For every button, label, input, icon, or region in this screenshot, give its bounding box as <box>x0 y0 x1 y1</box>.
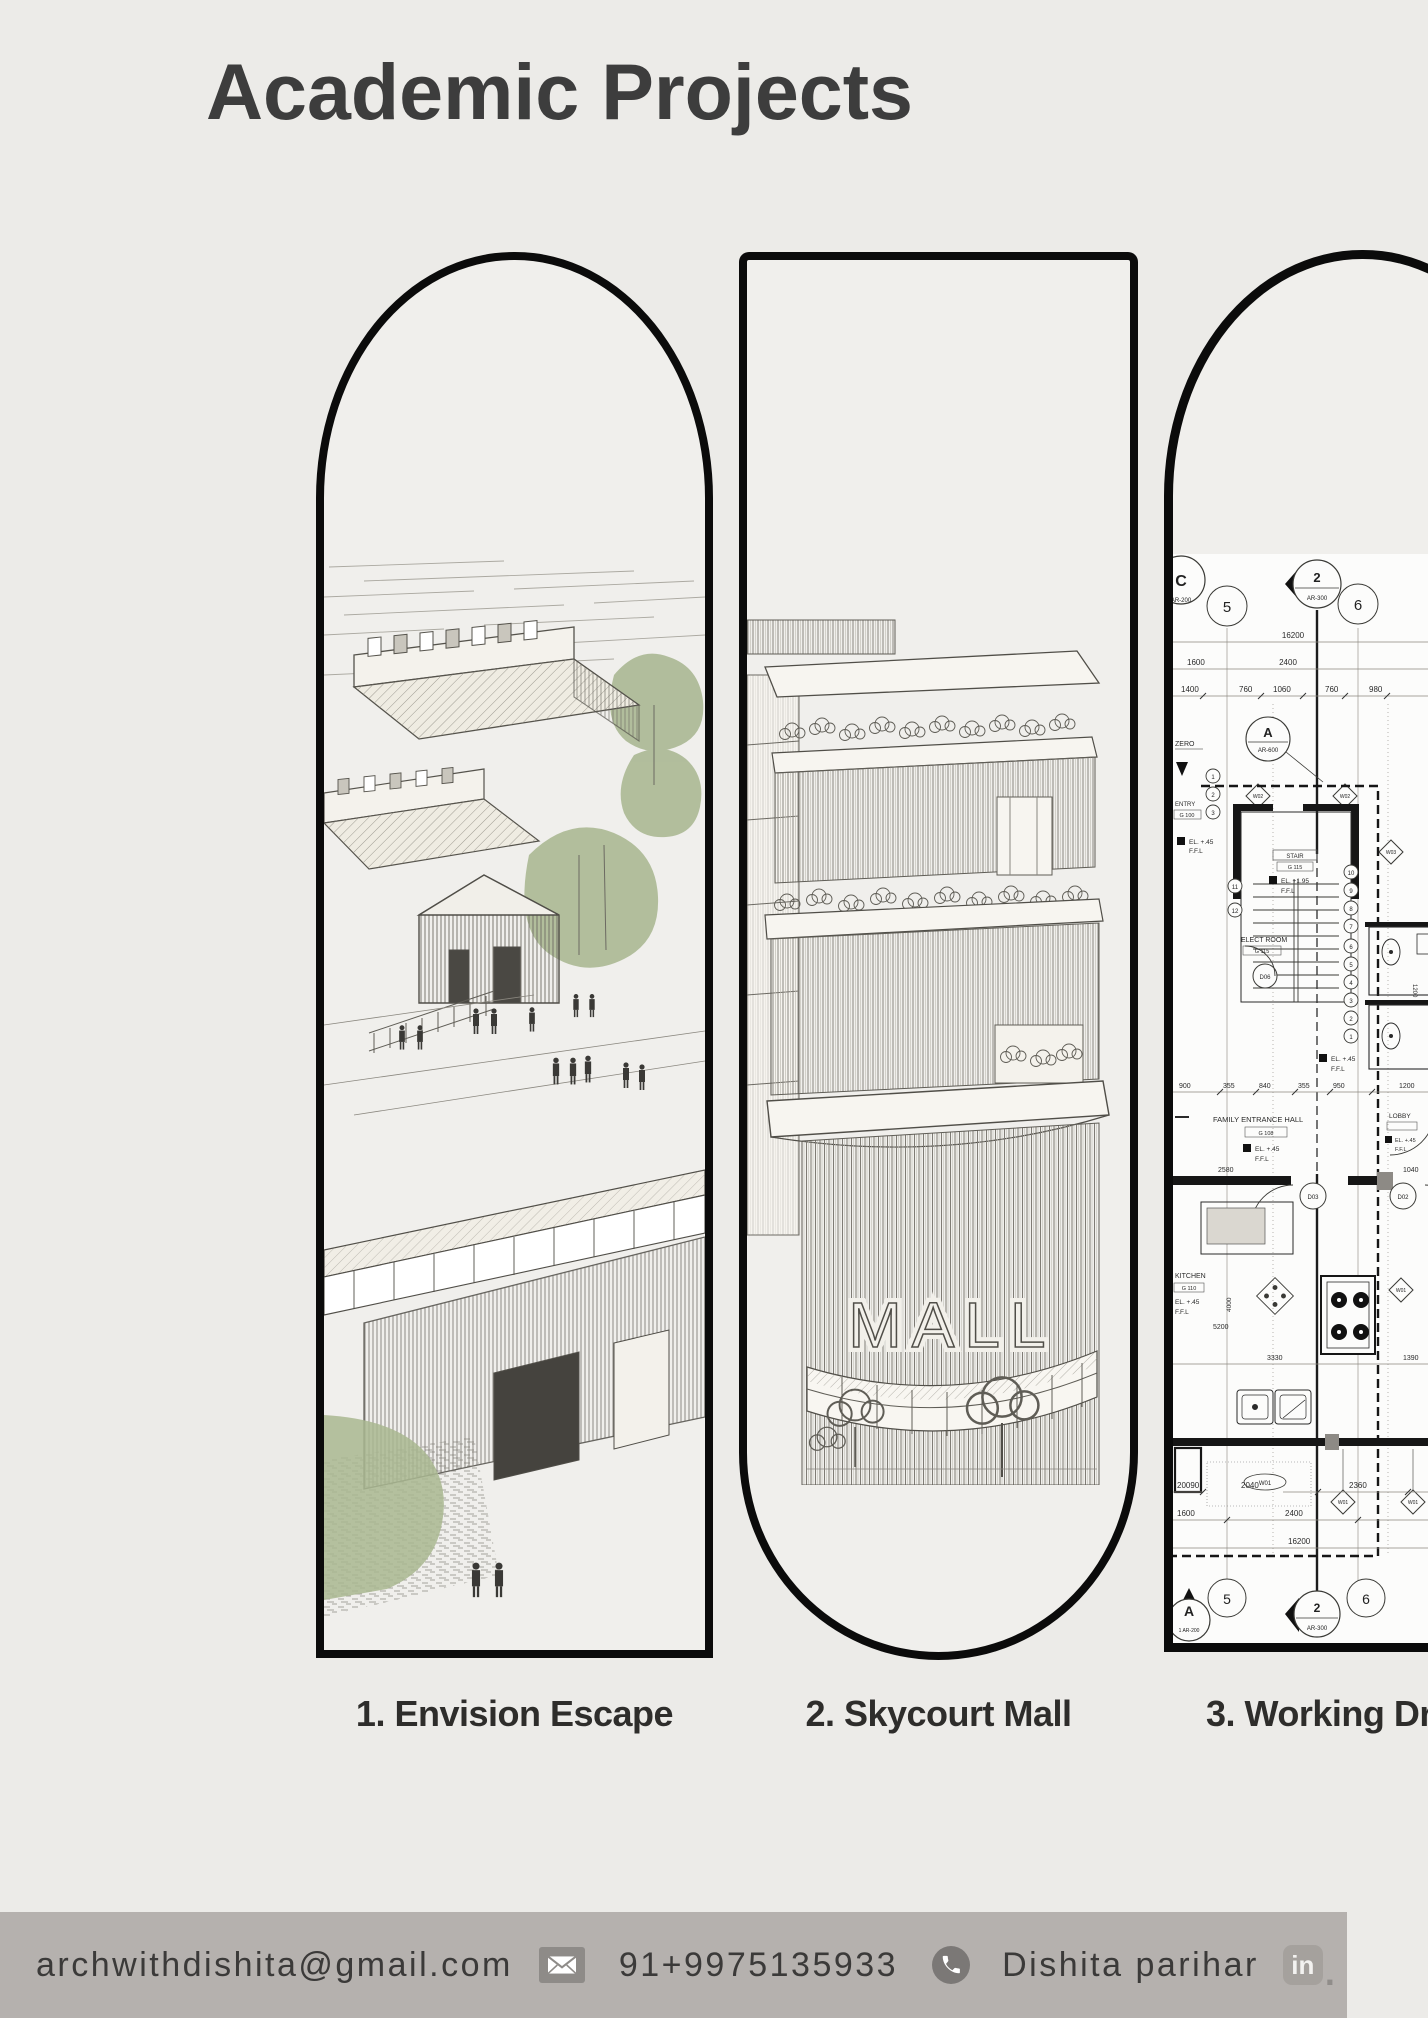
top-parapet <box>747 620 895 654</box>
svg-text:C: C <box>1175 573 1187 590</box>
svg-text:G 115: G 115 <box>1288 865 1303 871</box>
working-drawing-plan: C AR-200 5 2 AR-300 6 16200 1600 2400 <box>1173 554 1428 1643</box>
svg-text:W03: W03 <box>1386 850 1397 856</box>
toilet-rooms: 1200 <box>1365 922 1428 1069</box>
kitchen: KITCHEN G 110 EL. +.45 F.F.L 5200 4000 <box>1174 1202 1293 1331</box>
svg-text:F.F.L: F.F.L <box>1255 1156 1269 1163</box>
skycourt-mall-sketch: MALL MALL <box>747 605 1130 1485</box>
svg-text:F.F.L: F.F.L <box>1281 888 1295 895</box>
svg-text:5: 5 <box>1223 1591 1231 1607</box>
svg-text:16200: 16200 <box>1282 631 1305 640</box>
dimensions-mid: 900 355 840 355 950 1200 <box>1173 1083 1428 1095</box>
grid-bubbles-bottom: A 1 AR-200 5 2 AR-300 6 <box>1173 1579 1385 1641</box>
svg-text:950: 950 <box>1333 1083 1345 1090</box>
phone-icon[interactable] <box>932 1946 970 1984</box>
svg-text:980: 980 <box>1369 685 1383 694</box>
svg-text:LOBBY: LOBBY <box>1389 1113 1411 1120</box>
caption-envision-escape: 1. Envision Escape <box>316 1693 713 1735</box>
building-upper <box>354 621 639 741</box>
lobby: LOBBY EL. +.45 F.F.L <box>1385 1110 1428 1155</box>
svg-text:3330: 3330 <box>1267 1355 1283 1362</box>
svg-text:AR-300: AR-300 <box>1307 596 1328 602</box>
svg-text:A: A <box>1263 725 1273 740</box>
svg-text:D06: D06 <box>1259 975 1271 981</box>
caption-working-drawing: 3. Working Dr <box>1206 1693 1428 1735</box>
svg-text:840: 840 <box>1259 1083 1271 1090</box>
svg-text:4000: 4000 <box>1226 1297 1233 1312</box>
svg-text:STAIR: STAIR <box>1286 854 1304 860</box>
svg-text:D03: D03 <box>1307 1195 1319 1201</box>
svg-text:G 100: G 100 <box>1180 813 1195 819</box>
svg-text:EL. +.45: EL. +.45 <box>1175 1299 1200 1306</box>
svg-text:2: 2 <box>1313 570 1320 585</box>
svg-text:G 110: G 110 <box>1182 1286 1197 1292</box>
svg-text:AR-600: AR-600 <box>1258 748 1279 754</box>
svg-text:AR-300: AR-300 <box>1307 1626 1328 1632</box>
linkedin-dot: . <box>1325 1952 1335 1994</box>
svg-text:W02: W02 <box>1340 794 1351 800</box>
svg-text:5200: 5200 <box>1213 1324 1229 1331</box>
svg-text:900: 900 <box>1179 1083 1191 1090</box>
svg-text:ENTRY: ENTRY <box>1175 802 1195 808</box>
svg-text:2400: 2400 <box>1279 658 1297 667</box>
family-entrance-hall: FAMILY ENTRANCE HALL G 108 EL. +.45 F.F.… <box>1175 1115 1419 1174</box>
svg-text:EL. +.45: EL. +.45 <box>1255 1146 1280 1153</box>
dimensions-bottom: 20090 2040 2360 1600 2400 16200 <box>1173 1481 1428 1548</box>
stove <box>1321 1276 1375 1354</box>
svg-text:6: 6 <box>1354 597 1362 614</box>
svg-text:AR-200: AR-200 <box>1173 598 1192 604</box>
left-circled-tags: 1 2 3 <box>1206 769 1220 819</box>
svg-text:W01: W01 <box>1259 1481 1272 1487</box>
svg-text:G 115: G 115 <box>1255 949 1270 955</box>
svg-text:2040: 2040 <box>1241 1481 1259 1490</box>
svg-text:1200: 1200 <box>1399 1083 1415 1090</box>
grid-bubble-a: A AR-600 <box>1246 717 1323 782</box>
svg-text:EL. +.45: EL. +.45 <box>1189 839 1214 846</box>
svg-text:16200: 16200 <box>1288 1537 1311 1546</box>
svg-text:355: 355 <box>1223 1083 1235 1090</box>
svg-text:5: 5 <box>1223 599 1231 616</box>
facade-band-1 <box>775 757 1095 883</box>
svg-text:1200: 1200 <box>1411 984 1417 998</box>
svg-text:G 108: G 108 <box>1259 1131 1274 1137</box>
svg-text:F.F.L: F.F.L <box>1175 1309 1189 1316</box>
svg-text:1400: 1400 <box>1181 685 1199 694</box>
svg-text:W02: W02 <box>1253 794 1264 800</box>
window-tags-upper: W02 W02 W03 <box>1246 784 1403 864</box>
svg-text:2400: 2400 <box>1285 1509 1303 1518</box>
svg-text:FAMILY ENTRANCE HALL: FAMILY ENTRANCE HALL <box>1213 1115 1303 1124</box>
svg-text:760: 760 <box>1239 685 1253 694</box>
author-name-text: Dishita parihar <box>1002 1946 1259 1985</box>
plaza-lines <box>324 995 705 1115</box>
email-text[interactable]: archwithdishita@gmail.com <box>36 1946 513 1985</box>
svg-text:1600: 1600 <box>1177 1509 1195 1518</box>
dimensions-top: 16200 1600 2400 1400 760 1060 760 980 <box>1173 631 1428 699</box>
page-title: Academic Projects <box>206 46 913 138</box>
svg-text:D02: D02 <box>1397 1195 1409 1201</box>
project-frame-envision-escape <box>316 252 713 1658</box>
svg-text:2580: 2580 <box>1218 1167 1234 1174</box>
grid-bubbles-top: C AR-200 5 2 AR-300 6 <box>1173 556 1378 626</box>
linkedin-icon[interactable]: in <box>1283 1945 1323 1985</box>
svg-text:EL. +1.95: EL. +1.95 <box>1281 878 1309 885</box>
svg-text:12: 12 <box>1232 909 1239 915</box>
elect-room: ELECT ROOM G 115 D06 <box>1241 937 1287 988</box>
svg-text:355: 355 <box>1298 1083 1310 1090</box>
svg-text:EL. +.45: EL. +.45 <box>1331 1056 1356 1063</box>
dimensions-kitchen: 3330 1390 <box>1173 1355 1428 1364</box>
svg-text:F.F.L: F.F.L <box>1189 848 1203 855</box>
window-tags-lower: W01 W01 W01 <box>1244 1449 1425 1514</box>
svg-text:1 AR-200: 1 AR-200 <box>1179 1628 1200 1634</box>
svg-text:W01: W01 <box>1396 1288 1407 1294</box>
svg-text:ELECT ROOM: ELECT ROOM <box>1241 937 1287 944</box>
svg-text:ZERO: ZERO <box>1175 741 1195 748</box>
svg-text:KITCHEN: KITCHEN <box>1175 1273 1206 1280</box>
svg-text:760: 760 <box>1325 685 1339 694</box>
person-bottom-1 <box>472 1563 480 1598</box>
person-bottom-2 <box>495 1563 503 1598</box>
svg-text:F.F.L: F.F.L <box>1331 1066 1345 1073</box>
svg-text:2: 2 <box>1314 1601 1321 1615</box>
mid-level-note: EL. +.45 F.F.L <box>1319 1054 1356 1073</box>
svg-text:1060: 1060 <box>1273 685 1291 694</box>
envision-escape-sketch <box>324 555 705 1655</box>
svg-text:2360: 2360 <box>1349 1481 1367 1490</box>
facade-band-2 <box>771 923 1099 1095</box>
stair-block: STAIR G 115 EL. +1.95 F.F.L <box>1233 804 1359 1002</box>
svg-text:W01: W01 <box>1338 1500 1349 1506</box>
caption-skycourt-mall: 2. Skycourt Mall <box>739 1693 1138 1735</box>
svg-text:11: 11 <box>1232 885 1239 891</box>
svg-text:1040: 1040 <box>1403 1167 1419 1174</box>
grid-lines <box>1227 628 1388 1598</box>
svg-text:W01: W01 <box>1408 1500 1419 1506</box>
project-frame-skycourt-mall: MALL MALL <box>739 252 1138 1660</box>
svg-text:1390: 1390 <box>1403 1355 1419 1362</box>
envelope-icon[interactable] <box>539 1947 585 1983</box>
plan-sheet: C AR-200 5 2 AR-300 6 16200 1600 2400 <box>1173 554 1428 1643</box>
svg-text:1600: 1600 <box>1187 658 1205 667</box>
roof-slab <box>765 651 1099 697</box>
tree-green-right <box>610 654 703 838</box>
lower-walls <box>1173 1434 1428 1506</box>
sinks <box>1237 1390 1311 1424</box>
svg-text:F.F.L: F.F.L <box>1395 1147 1407 1153</box>
mall-sign-text: MALL <box>848 1289 1055 1361</box>
phone-text[interactable]: 91+9975135933 <box>619 1946 898 1985</box>
project-frame-working-drawing: C AR-200 5 2 AR-300 6 16200 1600 2400 <box>1164 250 1428 1652</box>
svg-text:20090: 20090 <box>1177 1481 1200 1490</box>
svg-text:EL. +.45: EL. +.45 <box>1395 1138 1416 1144</box>
svg-text:A: A <box>1184 1603 1194 1619</box>
building-lower-left <box>324 767 539 869</box>
svg-text:10: 10 <box>1348 871 1355 877</box>
footer-contact-bar: archwithdishita@gmail.com 91+9975135933 … <box>0 1912 1347 2018</box>
svg-text:6: 6 <box>1362 1591 1370 1607</box>
